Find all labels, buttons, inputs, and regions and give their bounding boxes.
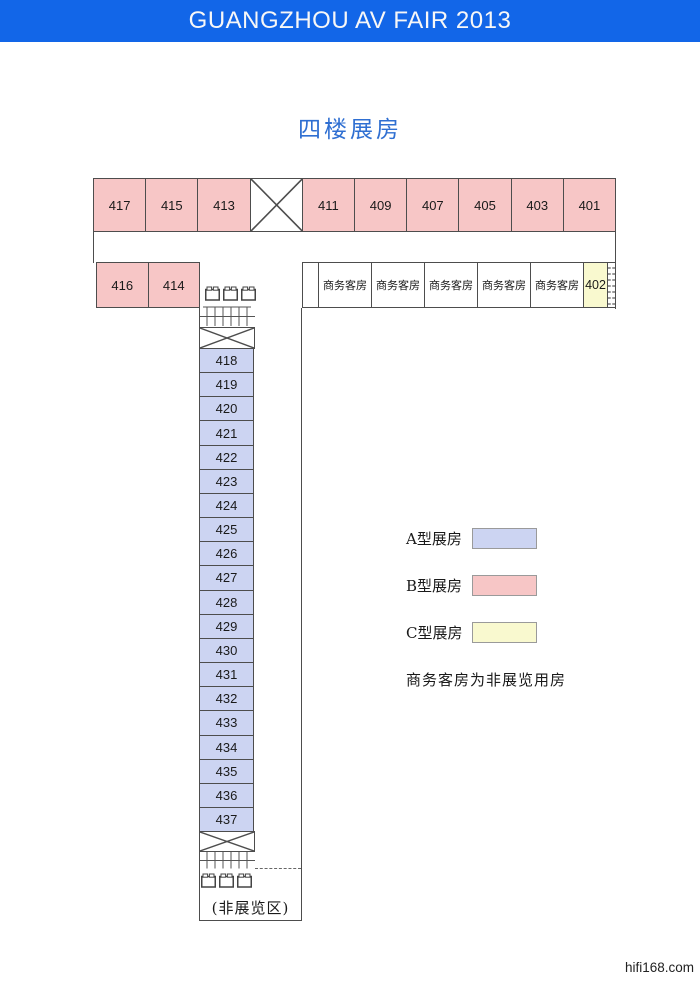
legend-label-a: A型展房 [406,528,464,549]
room-435: 435 [200,760,253,784]
banner-title: GUANGZHOU AV FAIR 2013 [189,7,512,35]
stairwell-cross-icon [251,179,303,231]
room-434: 434 [200,736,253,760]
column-wall-right [301,308,302,921]
corridor-wall-left [93,231,94,263]
stairs-ladder-icon [608,263,615,307]
business-room: 商务客房 [478,263,531,307]
room-425: 425 [200,518,253,542]
legend-swatch-c [472,622,537,643]
dashed-divider [255,868,301,869]
elevator-group-top [205,286,256,301]
elevator-icon [201,873,216,888]
column-wall-bottom [199,920,302,921]
stairwell-cross-icon [199,327,255,349]
room-418: 418 [200,349,253,373]
legend-item-a: A型展房 [406,527,537,549]
room-417: 417 [94,179,146,231]
room-428: 428 [200,591,253,615]
room-433: 433 [200,711,253,735]
room-426: 426 [200,542,253,566]
floor-plan-page: GUANGZHOU AV FAIR 2013 四楼展房 417 415 413 … [0,0,700,990]
column-wall-left [199,307,200,921]
room-423: 423 [200,470,253,494]
legend-swatch-b [472,575,537,596]
business-room: 商务客房 [425,263,478,307]
legend-item-c: C型展房 [406,621,537,643]
business-room: 商务客房 [372,263,425,307]
non-exhibit-label: (非展览区) [199,897,302,918]
room-427: 427 [200,566,253,590]
legend-swatch-a [472,528,537,549]
page-title: 四楼展房 [0,110,700,144]
legend-note: 商务客房为非展览用房 [406,669,566,690]
room-414: 414 [149,263,200,307]
room-402: 402 [584,263,608,307]
stairs-hatch-icon [199,306,255,327]
stairs-hatch-icon [199,852,255,869]
room-405: 405 [459,179,511,231]
elevator-group-bottom [201,873,252,888]
room-422: 422 [200,446,253,470]
room-415: 415 [146,179,198,231]
room-430: 430 [200,639,253,663]
business-row-spacer [303,263,319,307]
elevator-icon [219,873,234,888]
business-room-row: 商务客房 商务客房 商务客房 商务客房 商务客房 402 [302,262,616,308]
business-room: 商务客房 [319,263,372,307]
room-column: 418 419 420 421 422 423 424 425 426 427 … [199,348,254,832]
room-424: 424 [200,494,253,518]
legend-item-b: B型展房 [406,574,537,596]
room-413: 413 [198,179,250,231]
watermark: hifi168.com [625,960,694,975]
room-436: 436 [200,784,253,808]
room-416: 416 [97,263,149,307]
elevator-icon [241,286,256,301]
room-401: 401 [564,179,615,231]
room-432: 432 [200,687,253,711]
business-room: 商务客房 [531,263,584,307]
room-407: 407 [407,179,459,231]
banner: GUANGZHOU AV FAIR 2013 [0,0,700,42]
legend-label-c: C型展房 [406,622,464,643]
room-403: 403 [512,179,564,231]
room-409: 409 [355,179,407,231]
room-437: 437 [200,808,253,831]
room-411: 411 [303,179,355,231]
stairwell-cross-icon [199,831,255,852]
elevator-icon [223,286,238,301]
room-431: 431 [200,663,253,687]
elevator-icon [205,286,220,301]
top-room-row: 417 415 413 411 409 407 405 403 401 [93,178,616,232]
room-421: 421 [200,421,253,445]
second-room-row: 416 414 [96,262,200,308]
room-420: 420 [200,397,253,421]
elevator-icon [237,873,252,888]
legend-label-b: B型展房 [406,575,464,596]
room-429: 429 [200,615,253,639]
room-419: 419 [200,373,253,397]
